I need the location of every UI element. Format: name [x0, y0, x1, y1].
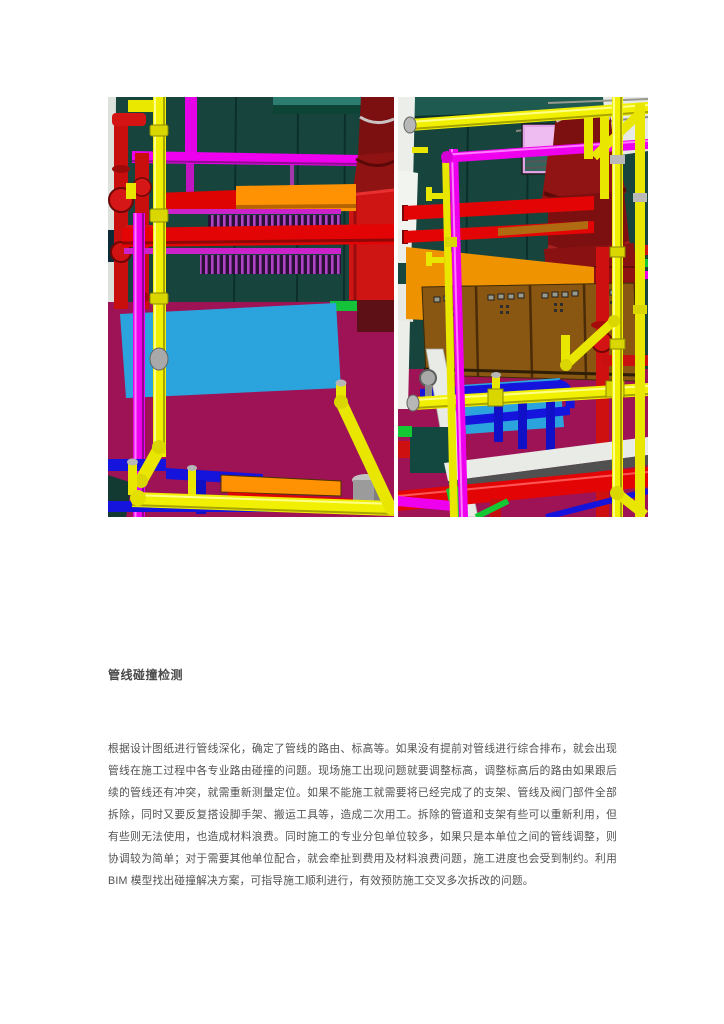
body-paragraph: 根据设计图纸进行管线深化，确定了管线的路由、标高等。如果没有提前对管线进行综合排… — [108, 738, 617, 892]
bim-screenshot-right — [398, 97, 648, 517]
teal-box — [410, 427, 450, 473]
section-heading: 管线碰撞检测 — [108, 666, 183, 683]
figure-row — [108, 97, 648, 517]
valve-handwheel — [420, 370, 436, 386]
gray-valve-ball — [150, 348, 168, 370]
finned-coil-lower — [200, 255, 341, 274]
bim-model-left-render — [108, 97, 394, 517]
bim-model-right-render — [398, 97, 648, 517]
bim-screenshot-left — [108, 97, 394, 517]
document-page: 管线碰撞检测 根据设计图纸进行管线深化，确定了管线的路由、标高等。如果没有提前对… — [0, 0, 724, 1024]
